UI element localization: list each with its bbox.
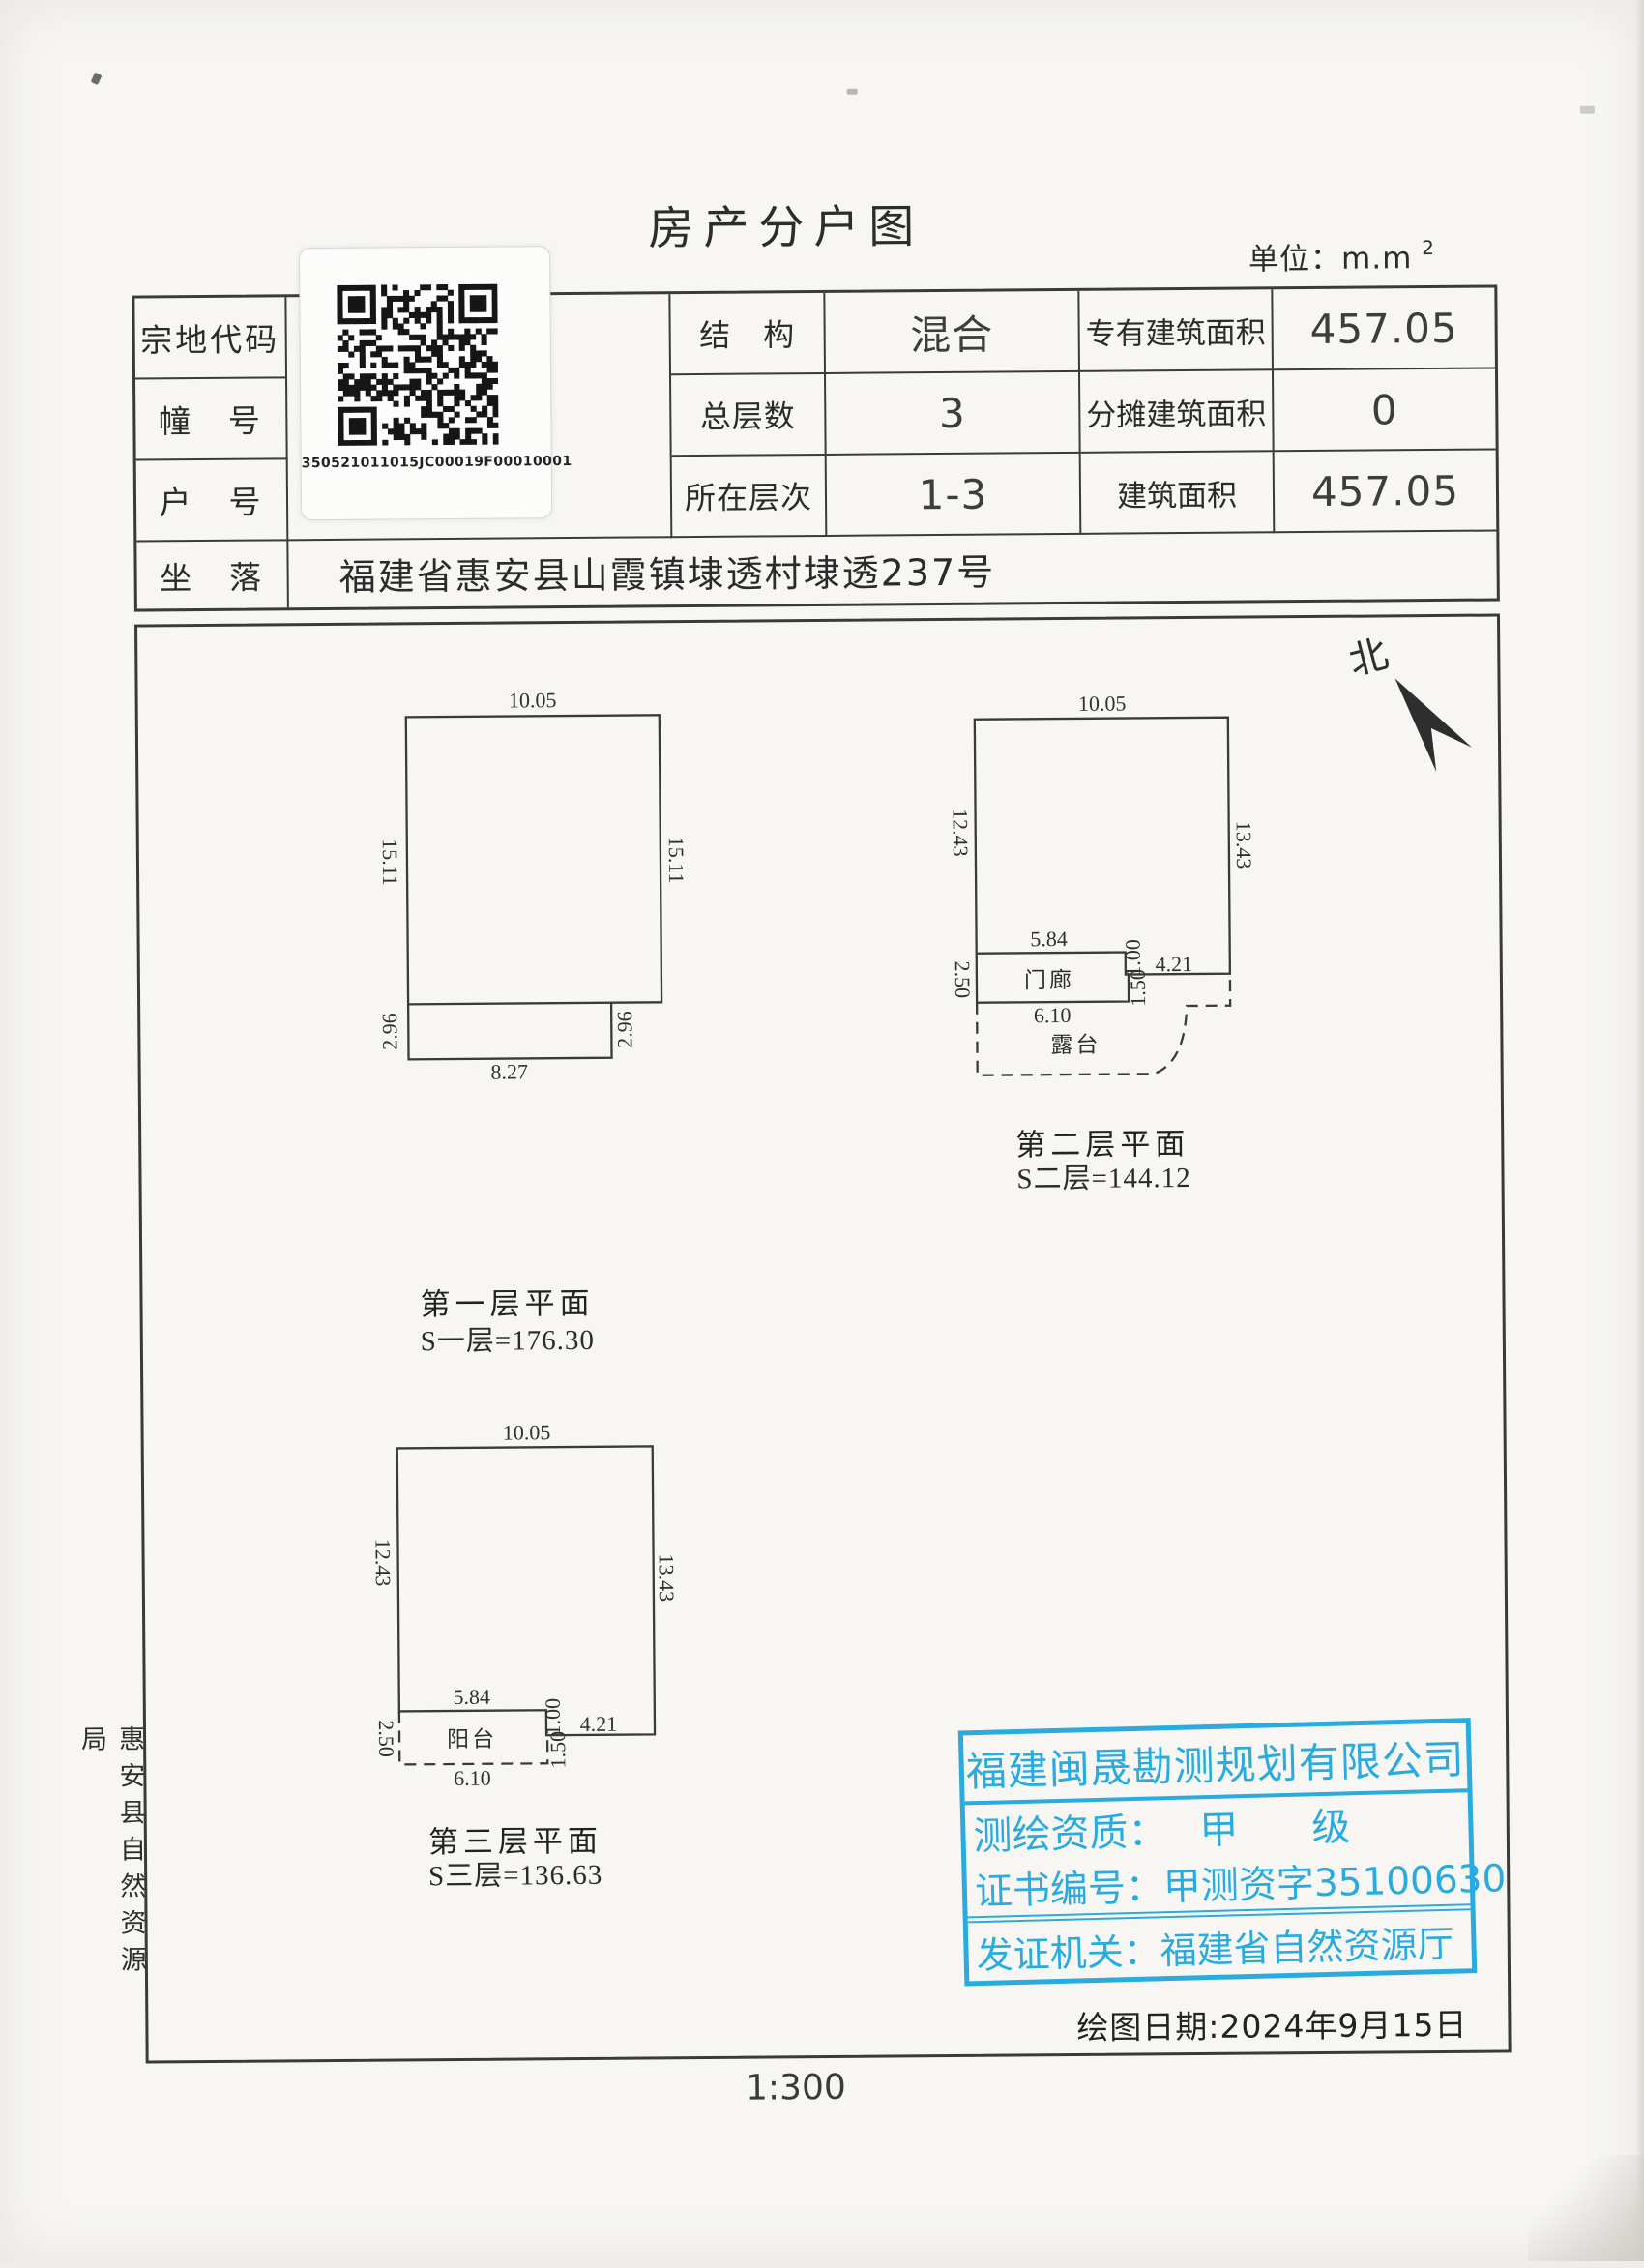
plan2-dim-porch-bottom: 6.10 (1034, 1003, 1072, 1028)
plan2-dim-top: 10.05 (1078, 692, 1127, 717)
value-shared-area: 0 (1274, 369, 1496, 453)
value-floor-range: 1-3 (827, 454, 1082, 537)
plan1-dim-ext-left: 2.96 (377, 1013, 402, 1050)
unit-superscript: 2 (1422, 236, 1435, 259)
page-title: 房产分户图 (573, 189, 1000, 258)
plan3-dim-right-bottom: 4.21 (580, 1712, 618, 1737)
scan-speck (1580, 106, 1595, 114)
qr-code (337, 284, 498, 446)
scan-content: 房产分户图 单位：m.m2 宗地代码 结 构 混合 专有建筑面积 457.05 … (0, 0, 1644, 2268)
plan2-room-terrace: 露台 (1050, 1026, 1101, 1059)
plan1-dim-ext-right: 2.96 (612, 1011, 637, 1048)
plan2-dim-left: 12.43 (948, 809, 973, 857)
plan2-dim-right: 13.43 (1231, 821, 1256, 869)
plan3-area: S三层=136.63 (428, 1852, 603, 1894)
value-structure: 混合 (825, 291, 1080, 374)
row-label-location: 坐 落 (136, 541, 289, 608)
plan1-dim-top: 10.05 (509, 688, 557, 713)
plan3-dim-mid: 5.84 (453, 1685, 490, 1710)
field-floor-range: 所在层次 (672, 456, 828, 538)
unit-text: 单位：m.m (1248, 241, 1413, 277)
map-scale: 1:300 (651, 2067, 941, 2108)
unit-label: 单位：m.m2 (1248, 233, 1435, 279)
scan-corner-smudge (1528, 2155, 1644, 2261)
scan-speck (91, 73, 103, 85)
field-shared-area: 分摊建筑面积 (1080, 370, 1275, 454)
field-structure: 结 构 (670, 293, 826, 375)
plan2-dim-mid: 5.84 (1030, 927, 1068, 952)
plan1-area: S一层=176.30 (421, 1317, 596, 1359)
plan3-dim-balcony-bottom: 6.10 (454, 1766, 491, 1791)
plan1-dim-left: 15.11 (377, 839, 402, 886)
field-building-area: 建筑面积 (1081, 452, 1276, 535)
value-building-area: 457.05 (1275, 451, 1497, 534)
agency-vertical-label: 惠安县自然资源局 (73, 1724, 150, 2016)
plan3-dim-step: 1.00 (541, 1698, 566, 1736)
plan2-dim-porch-left: 2.50 (950, 961, 975, 999)
scan-speck (847, 89, 858, 95)
stamp-company: 福建闽晟勘测规划有限公司 (963, 1723, 1468, 1805)
plan3-dim-balcony-left: 2.50 (373, 1720, 398, 1757)
plan2-room-porch: 门廊 (1024, 961, 1074, 994)
plan3-dim-right: 13.43 (654, 1553, 679, 1602)
plan2-area: S二层=144.12 (1016, 1155, 1191, 1196)
value-exclusive-area: 457.05 (1273, 288, 1495, 371)
qr-sticker: 350521011015JC00019F00010001 (299, 246, 552, 520)
plan3-dim-top: 10.05 (503, 1420, 551, 1445)
row-label-building-no: 幢 号 (135, 378, 288, 460)
plan2-dim-porch-right: 1.50 (1126, 969, 1151, 1007)
row-label-parcel-code: 宗地代码 (134, 297, 287, 379)
value-total-floors: 3 (826, 372, 1081, 456)
stamp-qualification-value: 甲 级 (1199, 1795, 1368, 1855)
stamp-qualification-label: 测绘资质： (973, 1800, 1167, 1861)
plan2-dim-right-bottom: 4.21 (1155, 952, 1192, 977)
plan1-dim-right: 15.11 (663, 837, 689, 884)
field-exclusive-area: 专有建筑面积 (1079, 289, 1274, 372)
scanned-page: 房产分户图 单位：m.m2 宗地代码 结 构 混合 专有建筑面积 457.05 … (0, 0, 1644, 2261)
plan3-room-balcony: 阳台 (447, 1721, 497, 1753)
stamp-issuer: 发证机关：福建省自然资源厅 (968, 1910, 1472, 1981)
value-location: 福建省惠安县山霞镇埭透村埭透237号 (288, 532, 1497, 608)
plan1-dim-bottom: 8.27 (490, 1059, 528, 1084)
scan-edge-shadow (1635, 0, 1644, 2261)
field-total-floors: 总层数 (671, 374, 827, 457)
row-label-unit-no: 户 号 (136, 459, 289, 542)
surveyor-stamp: 福建闽晟勘测规划有限公司 测绘资质： 甲 级 证书编号：甲测资字35100630… (958, 1718, 1478, 1986)
plan3-dim-left: 12.43 (369, 1539, 395, 1587)
parcel-code-number: 350521011015JC00019F00010001 (302, 454, 551, 471)
plan3-dim-balcony-right: 1.50 (545, 1731, 571, 1769)
drawing-date: 绘图日期:2024年9月15日 (974, 1999, 1467, 2049)
